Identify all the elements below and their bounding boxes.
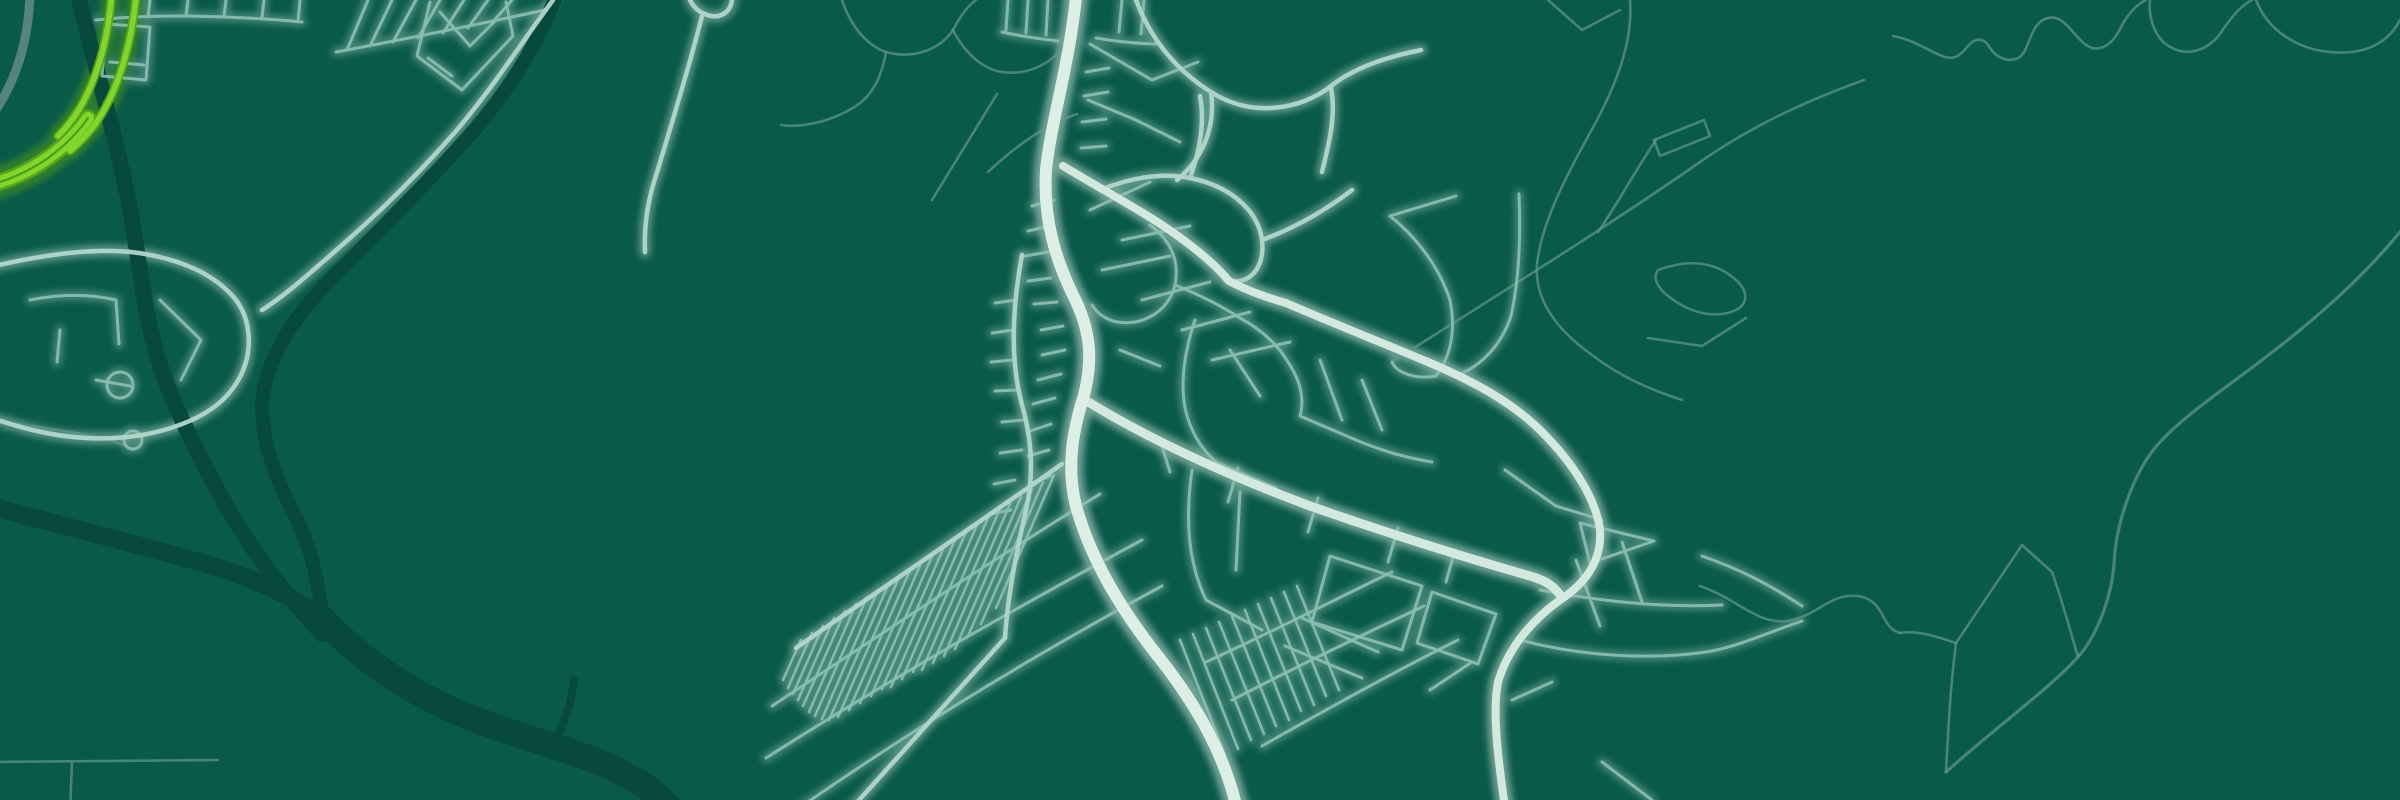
map-canvas[interactable] [0, 0, 2400, 800]
map-viewport[interactable] [0, 0, 2400, 800]
